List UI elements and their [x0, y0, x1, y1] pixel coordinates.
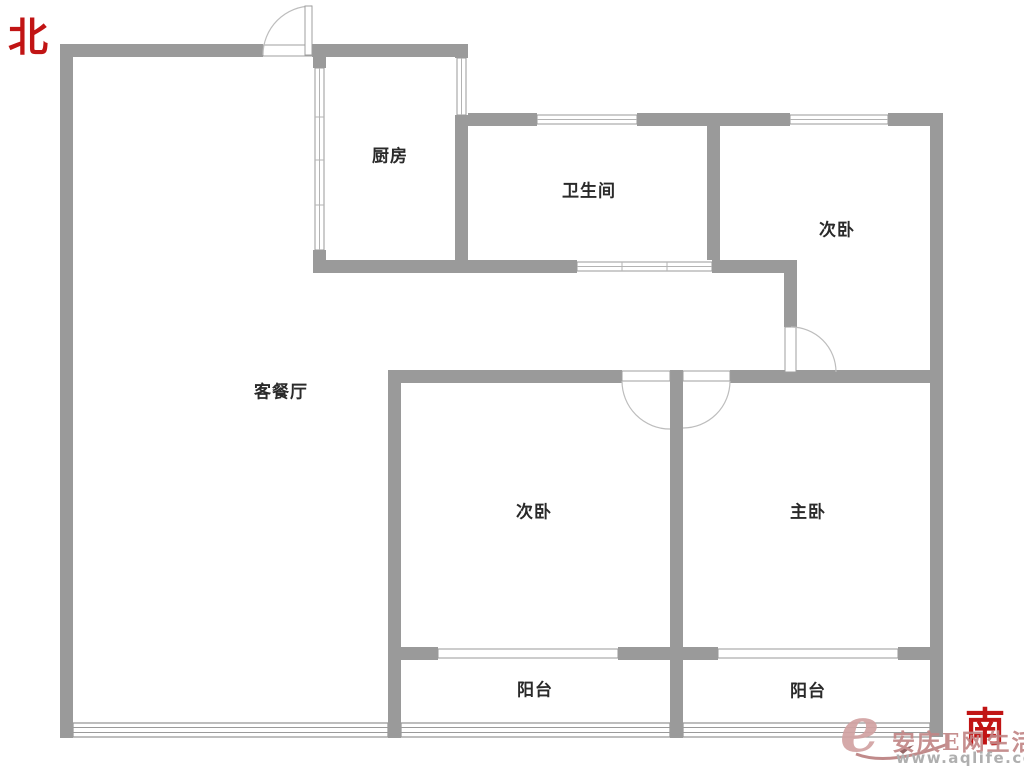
wall-segment [637, 113, 790, 126]
wall-segment [898, 647, 943, 660]
room-label-second-bedroom-south: 次卧 [516, 498, 552, 523]
watermark-url: www.aqlife.com [896, 749, 1024, 767]
window-band [73, 723, 388, 737]
wall-segment [388, 647, 438, 660]
wall-segment [455, 44, 468, 58]
room-label-balcony-left: 阳台 [517, 676, 553, 701]
room-label-balcony-right: 阳台 [790, 677, 826, 702]
watermark: e 安庆E网生活 www.aqlife.com [838, 702, 1024, 768]
bedroom-door-arc [622, 381, 670, 429]
compass-north-label: 北 [8, 18, 48, 58]
wall-segment [60, 44, 263, 57]
bedroom-door-panel [622, 371, 670, 381]
bedroom-door-panel [785, 327, 796, 372]
bedroom-door-panel [683, 371, 730, 381]
wall-segment [670, 370, 683, 383]
wall-segment [313, 260, 577, 273]
walls [60, 44, 943, 738]
sliding-door-opening [438, 649, 618, 658]
wall-segment [784, 273, 797, 327]
room-label-master-bedroom: 主卧 [790, 498, 826, 523]
wall-segment [313, 57, 326, 68]
window-band [401, 723, 670, 737]
doors [263, 6, 836, 429]
room-label-second-bedroom-north: 次卧 [819, 216, 855, 241]
wall-segment [930, 113, 943, 737]
floor-plan-page: 厨房 卫生间 次卧 客餐厅 次卧 主卧 阳台 阳台 北 南 e 安庆E网生活 w… [0, 0, 1024, 768]
sliding-door-opening [718, 649, 898, 658]
room-label-bathroom: 卫生间 [562, 177, 616, 202]
wall-segment [312, 44, 468, 57]
entrance-door-leaf [305, 6, 312, 55]
wall-segment [670, 383, 683, 738]
wall-segment [468, 113, 537, 126]
wall-segment [707, 126, 720, 260]
bedroom-door-arc [683, 381, 730, 428]
wall-segment [388, 370, 401, 738]
floor-plan-drawing [0, 0, 1024, 768]
wall-segment [712, 260, 797, 273]
wall-segment [455, 115, 468, 273]
wall-segment [618, 647, 718, 660]
windows [73, 58, 930, 737]
wall-segment [388, 370, 622, 383]
room-label-living-dining: 客餐厅 [254, 378, 308, 403]
bedroom-door-arc [791, 327, 836, 372]
room-label-kitchen: 厨房 [372, 142, 408, 167]
wall-segment [60, 44, 73, 738]
